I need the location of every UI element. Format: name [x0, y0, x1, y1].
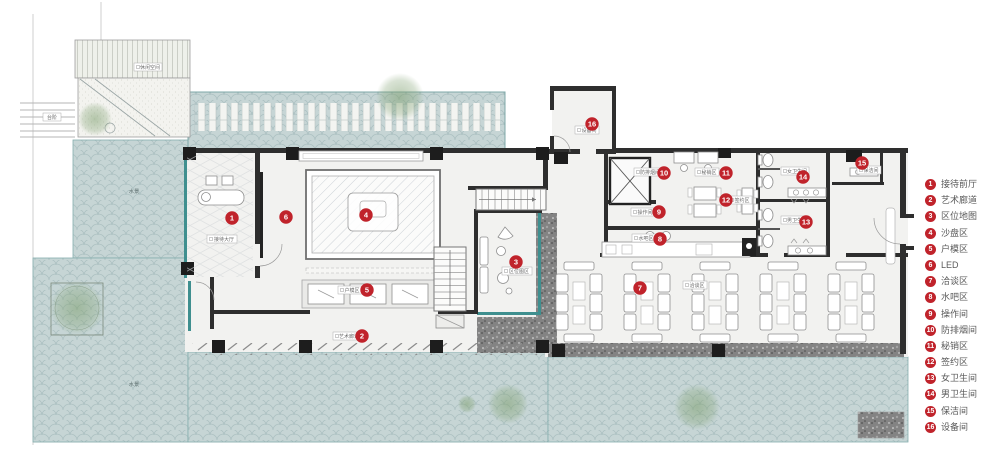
plan-marker-14: 14	[796, 170, 809, 183]
room-label-water-bar: 水吧区	[632, 234, 656, 242]
water-label-lower: 水景	[129, 380, 139, 388]
legend-label: 保洁间	[941, 406, 968, 417]
legend-label: 区位地图	[941, 211, 977, 222]
plan-marker-4: 4	[359, 208, 372, 221]
legend-number-badge: 12	[925, 357, 936, 368]
legend-item: 7洽谈区	[925, 276, 977, 287]
legend-number-badge: 6	[925, 260, 936, 271]
floor-plan-page: 接待大厅 区位图区 户模区 艺术廊道 洽谈区 操作间 水吧区 秘销区	[0, 0, 1000, 470]
svg-text:秘销区: 秘销区	[701, 169, 716, 176]
legend-item: 1接待前厅	[925, 179, 977, 190]
legend-label: 洽谈区	[941, 276, 968, 287]
plan-marker-15: 15	[855, 156, 868, 169]
plan-marker-1: 1	[225, 211, 238, 224]
plan-marker-13: 13	[799, 215, 812, 228]
plan-marker-6: 6	[279, 210, 292, 223]
legend-label: 沙盘区	[941, 228, 968, 239]
svg-text:防排烟间: 防排烟间	[640, 169, 660, 176]
svg-text:接待大厅: 接待大厅	[214, 236, 234, 243]
elevator-shaft	[610, 158, 650, 204]
room-label-model-area: 户模区	[338, 286, 362, 294]
svg-text:7: 7	[638, 284, 642, 293]
hall-top-window	[299, 151, 423, 161]
plan-marker-7: 7	[633, 281, 646, 294]
legend-item: 13女卫生间	[925, 373, 977, 384]
led-screen-wall	[260, 172, 263, 258]
svg-text:休闲空间: 休闲空间	[140, 64, 160, 71]
plan-marker-12: 12	[719, 193, 732, 206]
svg-text:6: 6	[284, 213, 288, 222]
colonnade-louver-band	[192, 343, 544, 355]
legend-item: 15保洁间	[925, 406, 977, 417]
legend-number-badge: 3	[925, 211, 936, 222]
room-label-sales-office: 秘销区	[695, 168, 719, 176]
legend-item: 6LED	[925, 260, 977, 271]
plan-marker-3: 3	[509, 255, 522, 268]
legend-number-badge: 13	[925, 373, 936, 384]
svg-text:14: 14	[799, 173, 808, 182]
svg-text:5: 5	[365, 286, 369, 295]
floor-plan-svg: 接待大厅 区位图区 户模区 艺术廊道 洽谈区 操作间 水吧区 秘销区	[0, 0, 1000, 470]
monitor-icon	[222, 176, 233, 185]
room-label-operation: 操作间	[631, 208, 655, 216]
legend-item: 9操作间	[925, 309, 977, 320]
legend-label: 签约区	[941, 357, 968, 368]
plan-marker-9: 9	[652, 205, 665, 218]
water-label-upper: 水景	[129, 187, 139, 195]
svg-text:洽谈区: 洽谈区	[689, 282, 704, 289]
svg-text:10: 10	[660, 169, 668, 178]
svg-text:3: 3	[514, 258, 518, 267]
legend-label: 水吧区	[941, 292, 968, 303]
legend-number-badge: 9	[925, 309, 936, 320]
svg-text:台阶: 台阶	[47, 114, 57, 121]
legend-item: 11秘销区	[925, 341, 977, 352]
legend-label: 户模区	[941, 244, 968, 255]
legend-label: 防排烟间	[941, 325, 977, 336]
plan-marker-11: 11	[719, 166, 732, 179]
legend-number-badge: 7	[925, 276, 936, 287]
legend-item: 16设备间	[925, 422, 977, 433]
svg-text:操作间: 操作间	[637, 209, 652, 216]
legend-item: 14男卫生间	[925, 389, 977, 400]
legend-label: 设备间	[941, 422, 968, 433]
legend-item: 12签约区	[925, 357, 977, 368]
label-terrace: 休闲空间	[134, 63, 162, 71]
monitor-icon	[206, 176, 217, 185]
legend-number-badge: 4	[925, 228, 936, 239]
stair-lower	[434, 247, 466, 328]
legend-number-badge: 5	[925, 244, 936, 255]
svg-text:12: 12	[722, 196, 730, 205]
svg-text:15: 15	[858, 159, 866, 168]
stepping-stone-walkway	[188, 92, 505, 152]
svg-text:户模区: 户模区	[344, 287, 359, 294]
sand-table	[306, 170, 440, 273]
legend-number-badge: 2	[925, 195, 936, 206]
legend-number-badge: 15	[925, 406, 936, 417]
legend-label: LED	[941, 260, 959, 271]
legend-item: 2艺术廊道	[925, 195, 977, 206]
legend-label: 男卫生间	[941, 389, 977, 400]
stair-upper	[476, 189, 546, 210]
svg-text:1: 1	[230, 214, 234, 223]
label-steps: 台阶	[43, 113, 61, 121]
svg-text:16: 16	[588, 120, 596, 129]
legend: 1接待前厅 2艺术廊道 3区位地图 4沙盘区 5户模区 6LED 7洽谈区 8水…	[925, 179, 977, 438]
svg-text:11: 11	[722, 169, 730, 178]
svg-text:9: 9	[657, 208, 661, 217]
legend-item: 3区位地图	[925, 211, 977, 222]
svg-text:13: 13	[802, 218, 810, 227]
room-label-reception-hall: 接待大厅	[207, 235, 237, 243]
legend-number-badge: 16	[925, 422, 936, 433]
plan-marker-5: 5	[360, 283, 373, 296]
svg-text:水吧区: 水吧区	[638, 235, 653, 242]
legend-label: 秘销区	[941, 341, 968, 352]
legend-label: 操作间	[941, 309, 968, 320]
legend-label: 女卫生间	[941, 373, 977, 384]
plan-marker-8: 8	[653, 232, 666, 245]
legend-number-badge: 1	[925, 179, 936, 190]
legend-number-badge: 14	[925, 389, 936, 400]
legend-label: 艺术廊道	[941, 195, 977, 206]
legend-item: 4沙盘区	[925, 228, 977, 239]
plan-marker-2: 2	[355, 329, 368, 342]
legend-item: 10防排烟间	[925, 325, 977, 336]
legend-item: 8水吧区	[925, 292, 977, 303]
plan-marker-10: 10	[657, 166, 670, 179]
legend-number-badge: 11	[925, 341, 936, 352]
legend-number-badge: 10	[925, 325, 936, 336]
legend-item: 5户模区	[925, 244, 977, 255]
legend-label: 接待前厅	[941, 179, 977, 190]
svg-text:8: 8	[658, 235, 662, 244]
svg-text:2: 2	[360, 332, 364, 341]
plan-marker-16: 16	[585, 117, 598, 130]
svg-text:签约区: 签约区	[734, 197, 749, 204]
legend-number-badge: 8	[925, 292, 936, 303]
svg-text:区位图区: 区位图区	[509, 268, 529, 275]
room-label-negotiation: 洽谈区	[683, 281, 707, 289]
